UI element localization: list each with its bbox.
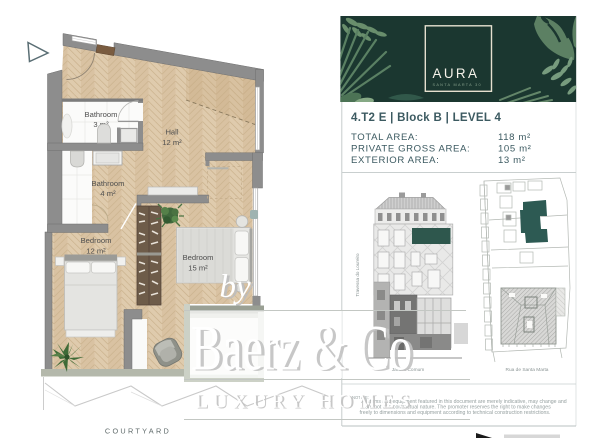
svg-text:4 m²: 4 m² (100, 189, 116, 198)
svg-text:EXTERIOR AREA:: EXTERIOR AREA: (351, 155, 439, 166)
svg-text:4.T2 E | Block B | LEVEL 4: 4.T2 E | Block B | LEVEL 4 (351, 112, 501, 124)
svg-text:Bathroom: Bathroom (85, 110, 118, 119)
svg-text:AURA: AURA (433, 66, 480, 81)
svg-text:12 m²: 12 m² (86, 247, 106, 256)
svg-text:Rua de Santa Marta: Rua de Santa Marta (506, 367, 549, 373)
svg-text:15 m²: 15 m² (188, 264, 208, 273)
svg-text:Baerz & Co: Baerz & Co (191, 313, 412, 385)
svg-text:13 m²: 13 m² (498, 155, 526, 166)
svg-text:by: by (220, 269, 252, 305)
svg-text:Travessa do Loureiro: Travessa do Loureiro (355, 253, 360, 297)
svg-text:Bedroom: Bedroom (183, 253, 214, 262)
svg-text:118 m²: 118 m² (498, 132, 531, 143)
svg-text:Bedroom: Bedroom (81, 236, 112, 245)
svg-text:COURTYARD: COURTYARD (105, 427, 171, 436)
svg-text:PRIVATE GROSS AREA:: PRIVATE GROSS AREA: (351, 144, 470, 155)
svg-text:Hall: Hall (165, 128, 178, 137)
svg-text:LUXURY HOMES: LUXURY HOMES (195, 392, 416, 413)
svg-text:SANTA MARTA 30: SANTA MARTA 30 (433, 83, 482, 87)
svg-text:TOTAL AREA:: TOTAL AREA: (351, 132, 418, 143)
svg-text:12 m²: 12 m² (162, 138, 182, 147)
svg-text:Bathroom: Bathroom (92, 179, 125, 188)
svg-text:105 m²: 105 m² (498, 144, 532, 155)
